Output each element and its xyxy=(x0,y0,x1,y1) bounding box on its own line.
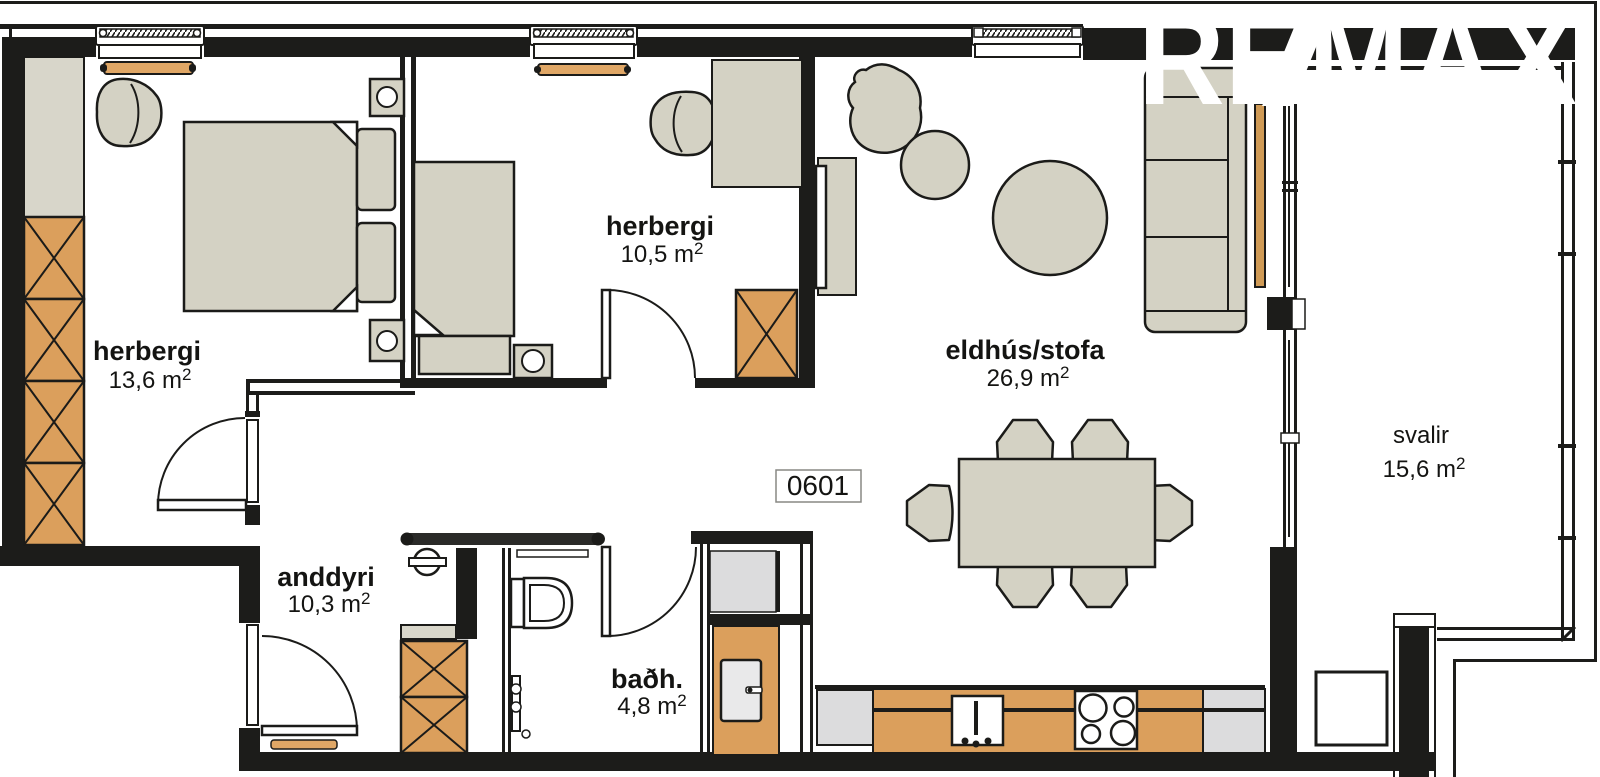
svg-text:10,3 m2: 10,3 m2 xyxy=(288,589,371,618)
svg-text:15,6 m2: 15,6 m2 xyxy=(1383,454,1466,483)
svg-text:baðh.: baðh. xyxy=(611,664,683,694)
svg-text:eldhús/stofa: eldhús/stofa xyxy=(945,335,1105,365)
svg-text:anddyri: anddyri xyxy=(277,562,375,592)
svg-text:herbergi: herbergi xyxy=(93,336,201,366)
svg-text:13,6 m2: 13,6 m2 xyxy=(109,365,192,394)
svg-text:26,9 m2: 26,9 m2 xyxy=(987,363,1070,392)
svg-text:10,5 m2: 10,5 m2 xyxy=(621,239,704,268)
svg-text:0601: 0601 xyxy=(787,470,849,501)
svg-text:herbergi: herbergi xyxy=(606,211,714,241)
svg-text:MAX: MAX xyxy=(1308,0,1577,132)
svg-text:svalir: svalir xyxy=(1393,422,1449,449)
svg-text:4,8 m2: 4,8 m2 xyxy=(617,691,687,720)
